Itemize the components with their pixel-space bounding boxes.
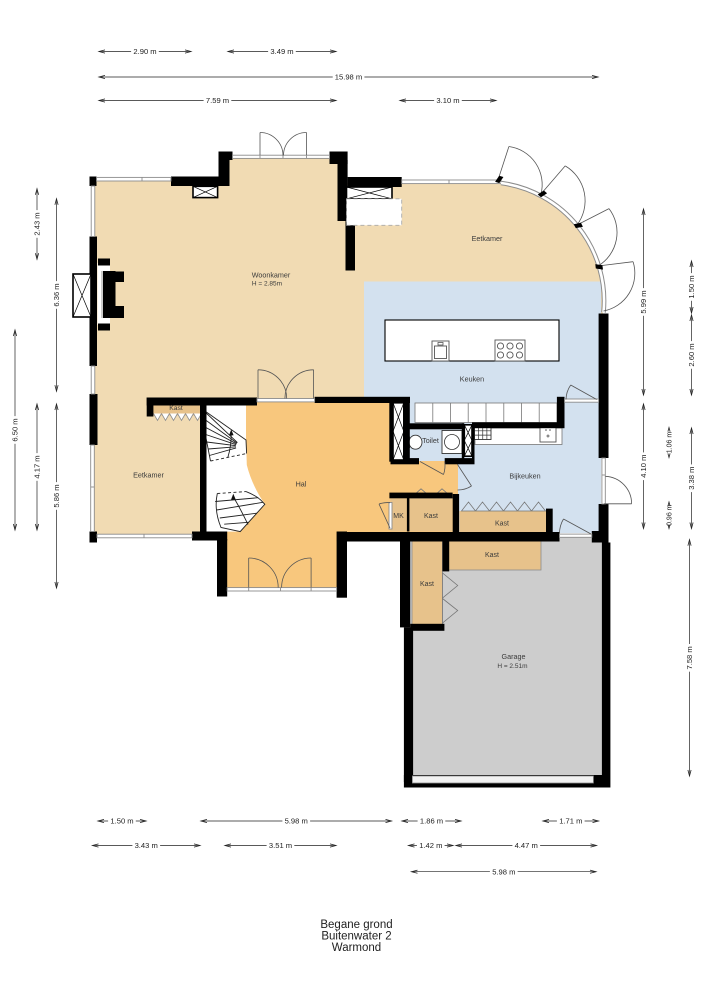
svg-text:Kast: Kast xyxy=(169,405,183,412)
svg-text:2.43 m: 2.43 m xyxy=(33,212,42,235)
svg-text:1.42 m: 1.42 m xyxy=(419,841,442,850)
svg-text:Buitenwater 2: Buitenwater 2 xyxy=(321,931,391,943)
svg-text:1.50 m: 1.50 m xyxy=(687,275,696,298)
svg-text:4.47 m: 4.47 m xyxy=(515,841,538,850)
svg-text:Garage: Garage xyxy=(502,652,526,661)
svg-text:4.17 m: 4.17 m xyxy=(33,455,42,478)
svg-text:1.50 m: 1.50 m xyxy=(110,817,133,826)
svg-text:Begane grond: Begane grond xyxy=(320,919,392,931)
svg-text:5.98 m: 5.98 m xyxy=(285,817,308,826)
svg-text:Eetkamer: Eetkamer xyxy=(133,471,164,480)
svg-text:3.43 m: 3.43 m xyxy=(135,841,158,850)
svg-text:Warmond: Warmond xyxy=(332,942,381,954)
svg-text:Keuken: Keuken xyxy=(460,375,484,384)
svg-text:Toilet: Toilet xyxy=(422,436,439,445)
svg-text:Woonkamer: Woonkamer xyxy=(252,271,291,280)
svg-text:3.38 m: 3.38 m xyxy=(687,467,696,490)
svg-text:5.86 m: 5.86 m xyxy=(52,484,61,507)
svg-text:7.58 m: 7.58 m xyxy=(685,646,694,669)
svg-text:6.50 m: 6.50 m xyxy=(11,418,20,441)
svg-text:Kast: Kast xyxy=(420,581,434,588)
svg-text:2.60 m: 2.60 m xyxy=(687,343,696,366)
svg-text:15.98 m: 15.98 m xyxy=(335,73,362,82)
svg-text:Kast: Kast xyxy=(495,521,509,528)
svg-text:3.49 m: 3.49 m xyxy=(270,47,293,56)
svg-text:0.96 m: 0.96 m xyxy=(666,504,673,526)
svg-text:MK: MK xyxy=(393,513,404,520)
svg-text:4.10 m: 4.10 m xyxy=(639,455,648,478)
svg-text:2.90 m: 2.90 m xyxy=(133,47,156,56)
svg-text:Bijkeuken: Bijkeuken xyxy=(509,472,540,481)
svg-text:1.86 m: 1.86 m xyxy=(420,817,443,826)
svg-text:5.99 m: 5.99 m xyxy=(639,290,648,313)
svg-text:7.59 m: 7.59 m xyxy=(206,96,229,105)
svg-text:3.10 m: 3.10 m xyxy=(436,96,459,105)
svg-text:Kast: Kast xyxy=(424,513,438,520)
svg-text:Hal: Hal xyxy=(296,480,307,489)
svg-text:H = 2.85m: H = 2.85m xyxy=(252,281,282,288)
svg-text:1.06 m: 1.06 m xyxy=(666,432,673,454)
svg-text:Eetkamer: Eetkamer xyxy=(472,234,503,243)
svg-text:1.71 m: 1.71 m xyxy=(559,817,582,826)
svg-text:3.51 m: 3.51 m xyxy=(269,841,292,850)
svg-text:H = 2.51m: H = 2.51m xyxy=(497,663,527,670)
svg-text:6.36 m: 6.36 m xyxy=(52,283,61,306)
svg-text:5.98 m: 5.98 m xyxy=(492,867,515,876)
svg-text:Kast: Kast xyxy=(485,552,499,559)
